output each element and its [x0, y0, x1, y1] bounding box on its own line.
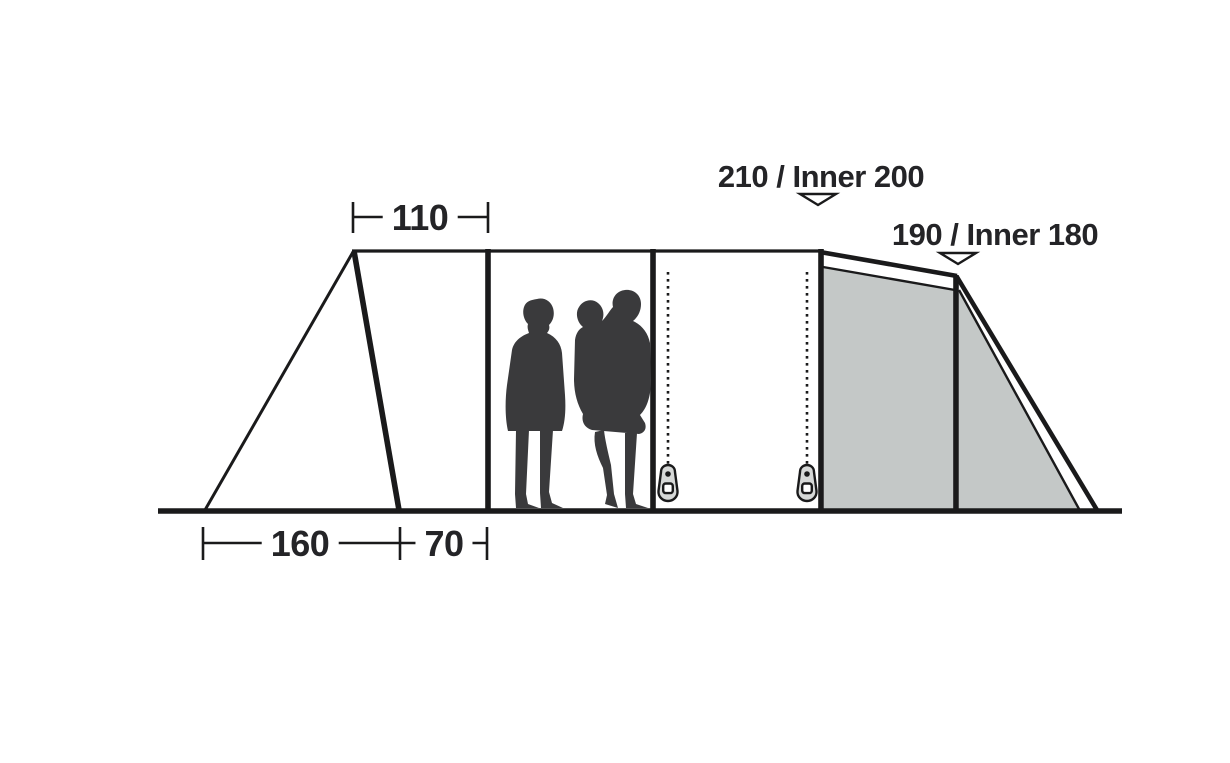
people-silhouette — [506, 290, 651, 508]
guy-line — [205, 252, 353, 510]
tent-diagram-svg — [0, 0, 1230, 763]
triangle-down-marker-icon — [940, 253, 976, 264]
height-label-rear-peak: 190 / Inner 180 — [892, 219, 1098, 250]
dimension-label-bottom-right: 70 — [415, 526, 472, 562]
tent-dimension-diagram: 110 160 70 210 / Inner 200 190 / Inner 1… — [0, 0, 1230, 763]
front-pole — [354, 251, 399, 510]
dimension-label-top-width: 110 — [383, 200, 458, 236]
person-silhouette — [506, 298, 566, 508]
dimension-label-bottom-left: 160 — [262, 526, 339, 562]
rear-roof-panel — [824, 268, 954, 509]
zipper-pull-icon — [797, 465, 816, 501]
height-label-main-peak: 210 / Inner 200 — [718, 161, 924, 192]
zipper-pull-icon — [658, 465, 677, 501]
triangle-down-marker-icon — [800, 194, 836, 205]
person-with-child-silhouette — [574, 290, 651, 508]
